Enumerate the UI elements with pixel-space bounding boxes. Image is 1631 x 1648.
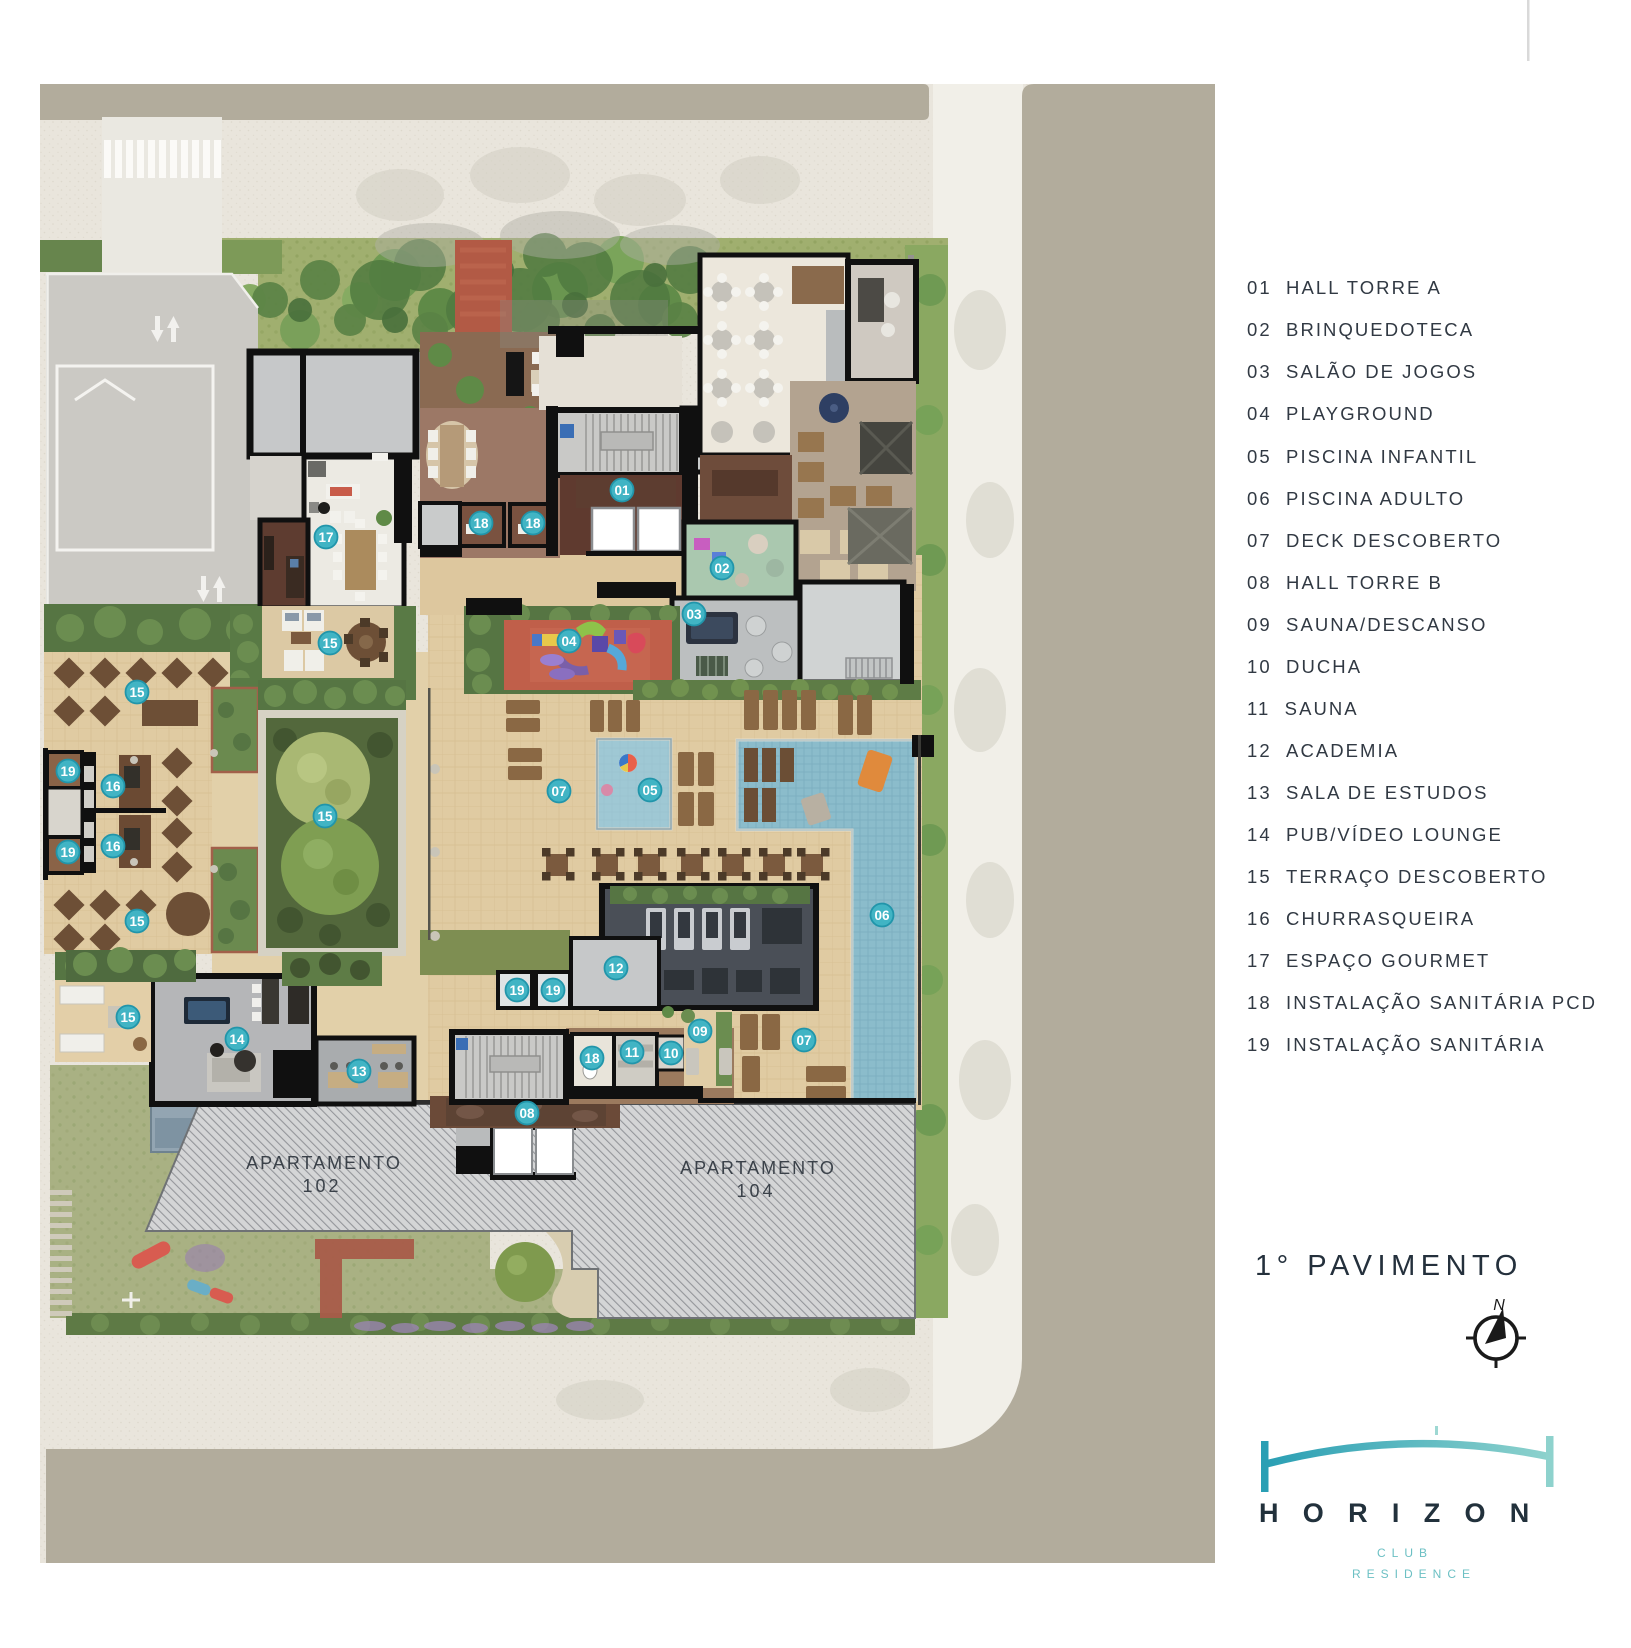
svg-text:07: 07 bbox=[796, 1033, 811, 1048]
svg-text:14: 14 bbox=[229, 1032, 245, 1047]
svg-text:HORIZON: HORIZON bbox=[1259, 1498, 1554, 1528]
svg-text:RESIDENCE: RESIDENCE bbox=[1352, 1567, 1476, 1581]
svg-text:N: N bbox=[1493, 1297, 1505, 1314]
svg-text:18: 18 bbox=[473, 516, 489, 531]
svg-text:04 PLAYGROUND: 04 PLAYGROUND bbox=[1247, 403, 1435, 424]
svg-text:16: 16 bbox=[105, 839, 121, 854]
svg-text:01: 01 bbox=[614, 483, 630, 498]
svg-text:04: 04 bbox=[561, 634, 577, 649]
svg-text:11: 11 bbox=[625, 1045, 640, 1060]
svg-text:06: 06 bbox=[874, 908, 890, 923]
svg-text:11 SAUNA: 11 SAUNA bbox=[1247, 698, 1359, 719]
svg-text:1° PAVIMENTO: 1° PAVIMENTO bbox=[1255, 1250, 1523, 1282]
svg-text:05 PISCINA INFANTIL: 05 PISCINA INFANTIL bbox=[1247, 446, 1478, 467]
svg-text:08 HALL TORRE B: 08 HALL TORRE B bbox=[1247, 572, 1443, 593]
svg-text:03: 03 bbox=[686, 607, 702, 622]
svg-text:17: 17 bbox=[318, 530, 333, 545]
svg-text:15: 15 bbox=[129, 914, 145, 929]
svg-text:08: 08 bbox=[519, 1106, 535, 1121]
svg-text:06 PISCINA ADULTO: 06 PISCINA ADULTO bbox=[1247, 488, 1465, 509]
svg-text:104: 104 bbox=[736, 1181, 775, 1201]
svg-text:09 SAUNA/DESCANSO: 09 SAUNA/DESCANSO bbox=[1247, 614, 1487, 635]
svg-text:19: 19 bbox=[545, 983, 560, 998]
svg-text:01 HALL TORRE A: 01 HALL TORRE A bbox=[1247, 277, 1442, 298]
svg-text:17 ESPAÇO GOURMET: 17 ESPAÇO GOURMET bbox=[1247, 950, 1490, 971]
svg-text:14 PUB/VÍDEO LOUNGE: 14 PUB/VÍDEO LOUNGE bbox=[1247, 824, 1503, 845]
svg-text:19: 19 bbox=[509, 983, 524, 998]
svg-text:15: 15 bbox=[322, 636, 338, 651]
svg-text:15 TERRAÇO DESCOBERTO: 15 TERRAÇO DESCOBERTO bbox=[1247, 866, 1547, 887]
svg-text:19 INSTALAÇÃO SANITÁRIA: 19 INSTALAÇÃO SANITÁRIA bbox=[1247, 1034, 1546, 1055]
svg-text:CLUB: CLUB bbox=[1377, 1546, 1433, 1560]
svg-text:07 DECK DESCOBERTO: 07 DECK DESCOBERTO bbox=[1247, 530, 1502, 551]
svg-text:09: 09 bbox=[692, 1024, 707, 1039]
svg-text:18: 18 bbox=[525, 516, 541, 531]
svg-text:102: 102 bbox=[302, 1176, 341, 1196]
svg-text:15: 15 bbox=[120, 1010, 136, 1025]
svg-text:12 ACADEMIA: 12 ACADEMIA bbox=[1247, 740, 1399, 761]
svg-text:02 BRINQUEDOTECA: 02 BRINQUEDOTECA bbox=[1247, 319, 1474, 340]
svg-text:07: 07 bbox=[551, 784, 566, 799]
svg-text:05: 05 bbox=[642, 783, 658, 798]
svg-text:12: 12 bbox=[608, 961, 623, 976]
svg-text:10 DUCHA: 10 DUCHA bbox=[1247, 656, 1362, 677]
svg-text:15: 15 bbox=[129, 685, 145, 700]
svg-text:18 INSTALAÇÃO SANITÁRIA PCD: 18 INSTALAÇÃO SANITÁRIA PCD bbox=[1247, 992, 1597, 1013]
svg-text:APARTAMENTO: APARTAMENTO bbox=[680, 1158, 836, 1178]
svg-text:15: 15 bbox=[317, 809, 333, 824]
svg-text:19: 19 bbox=[60, 764, 75, 779]
svg-text:03 SALÃO DE JOGOS: 03 SALÃO DE JOGOS bbox=[1247, 361, 1477, 382]
svg-text:02: 02 bbox=[714, 561, 729, 576]
svg-text:19: 19 bbox=[60, 845, 75, 860]
svg-text:16: 16 bbox=[105, 779, 121, 794]
svg-text:13: 13 bbox=[351, 1064, 367, 1079]
svg-text:18: 18 bbox=[584, 1051, 600, 1066]
svg-text:APARTAMENTO: APARTAMENTO bbox=[246, 1153, 402, 1173]
svg-text:16 CHURRASQUEIRA: 16 CHURRASQUEIRA bbox=[1247, 908, 1475, 929]
svg-text:10: 10 bbox=[663, 1046, 678, 1061]
svg-text:13 SALA DE ESTUDOS: 13 SALA DE ESTUDOS bbox=[1247, 782, 1489, 803]
